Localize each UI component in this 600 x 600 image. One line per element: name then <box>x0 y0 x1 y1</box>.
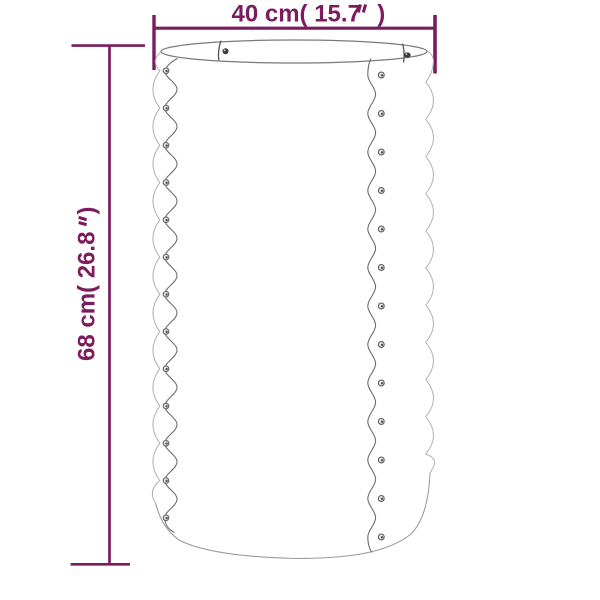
svg-text:40 cm( 15.7: 40 cm( 15.7 <box>232 1 361 28</box>
svg-text:): ) <box>377 1 385 28</box>
svg-text:68 cm( 26.8: 68 cm( 26.8 <box>74 232 101 361</box>
svg-text:): ) <box>74 207 101 215</box>
